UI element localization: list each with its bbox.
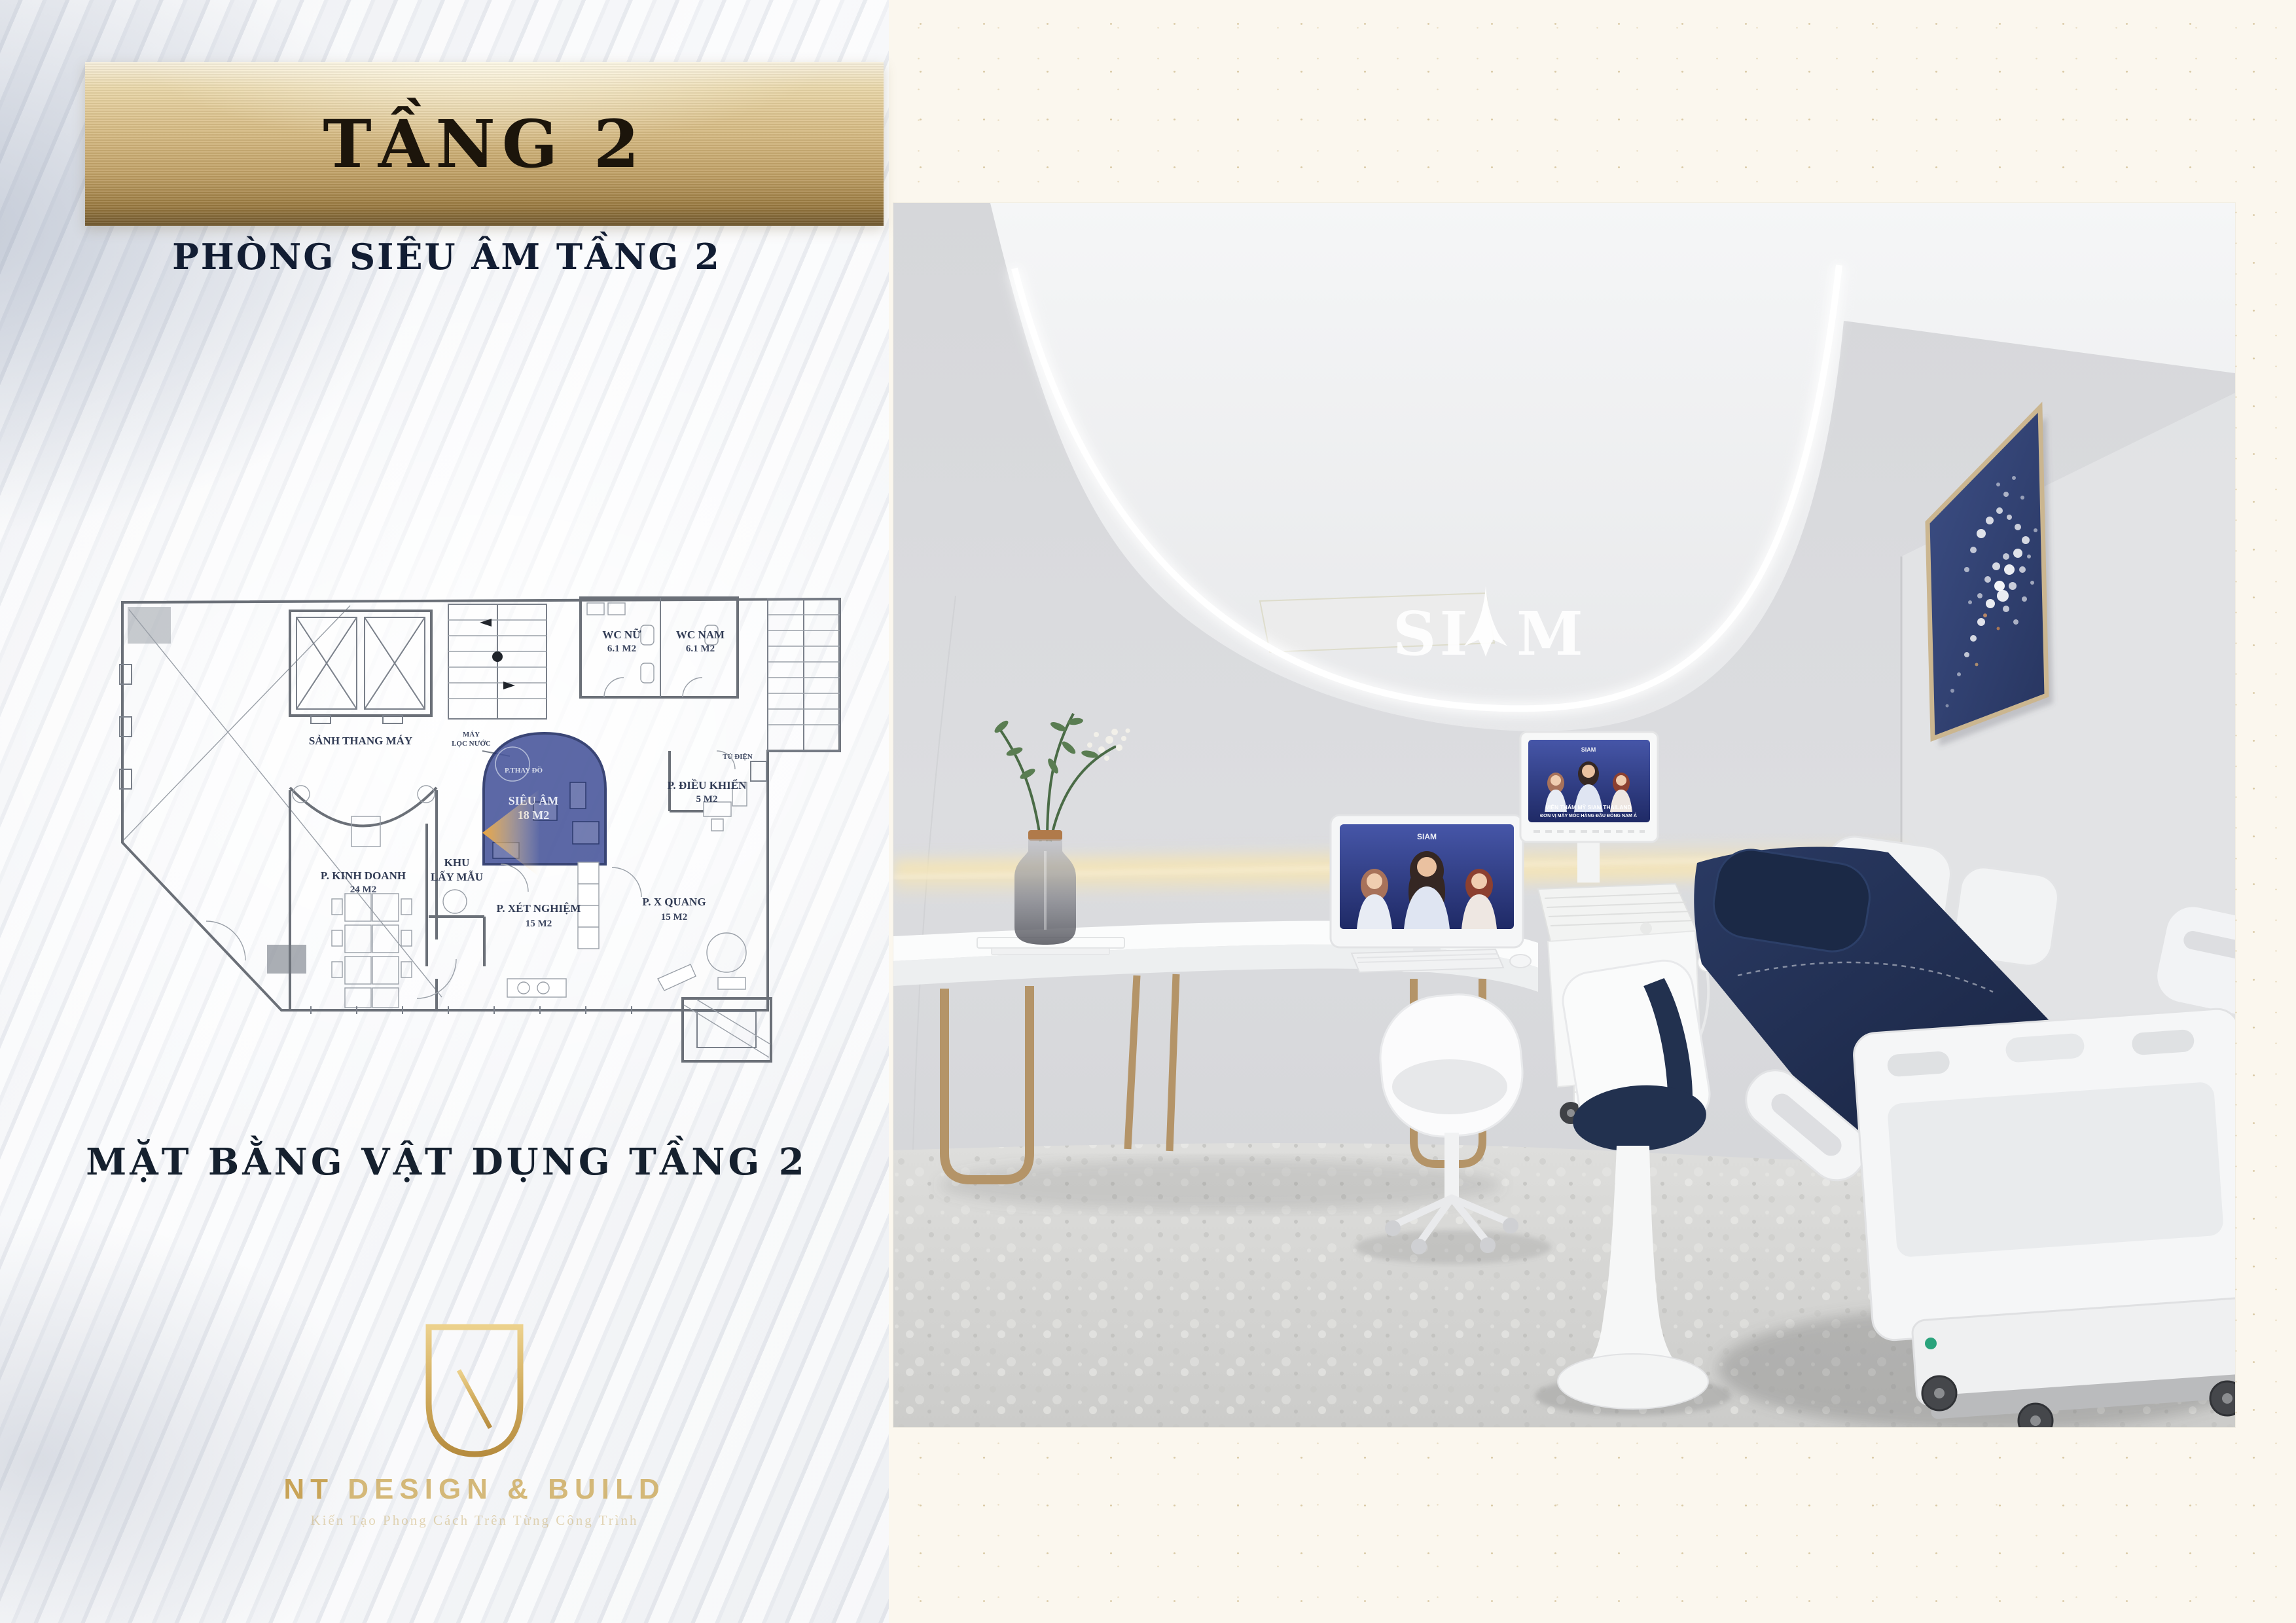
nt-monogram-shield-icon <box>418 1319 531 1458</box>
label-dieu-khien: P. ĐIỀU KHIỂN <box>668 779 747 792</box>
svg-text:6.1 M2: 6.1 M2 <box>686 644 715 654</box>
kinh-doanh-room <box>290 786 456 1009</box>
label-wc-nu: WC NỮ <box>602 628 641 641</box>
bed-power-indicator <box>1925 1338 1937 1349</box>
label-khu-lay-mau: KHU <box>444 856 470 869</box>
floor-banner-title: TẦNG 2 <box>323 105 645 183</box>
floor-banner: TẦNG 2 <box>85 62 884 226</box>
svg-text:LẤY MẪU: LẤY MẪU <box>431 871 483 883</box>
label-xet-nghiem: P. XÉT NGHIỆM <box>497 902 581 915</box>
bottom-shaft <box>683 998 771 1061</box>
presentation-page: TẦNG 2 PHÒNG SIÊU ÂM TẦNG 2 <box>0 0 2296 1623</box>
siam-logo-text-left: SI <box>1393 598 1471 669</box>
label-wc-nam: WC NAM <box>676 629 725 641</box>
label-tu-dien: TỦ ĐIỆN <box>723 752 753 761</box>
imac-screen-brand: SIAM <box>1417 832 1437 841</box>
stairs-main <box>448 604 547 719</box>
ultrasound-room-render: SI M <box>893 203 2235 1427</box>
svg-text:5 M2: 5 M2 <box>696 794 718 805</box>
label-lobby: SẢNH THANG MÁY <box>309 735 412 747</box>
x-quang-room <box>612 867 746 991</box>
elevator-shafts <box>290 611 431 723</box>
svg-text:LỌC NƯỚC: LỌC NƯỚC <box>452 740 491 748</box>
svg-text:15 M2: 15 M2 <box>526 919 552 929</box>
svg-text:15 M2: 15 M2 <box>661 912 687 922</box>
label-x-quang: P. X QUANG <box>642 896 706 908</box>
room-scene: SI M <box>893 203 2235 1427</box>
floor-plan-drawing: SẢNH THANG MÁY MÁY LỌC NƯỚC <box>115 586 841 1064</box>
plan-caption: MẶT BẰNG VẬT DỤNG TẦNG 2 <box>0 1140 893 1184</box>
company-logo: NT DESIGN & BUILD Kiến Tạo Phong Cách Tr… <box>245 1319 704 1529</box>
siam-logo-text-right: M <box>1516 598 1587 669</box>
label-thay-do: P.THAY ĐỒ <box>505 766 543 775</box>
mouse <box>1510 955 1531 968</box>
room-subtitle: PHÒNG SIÊU ÂM TẦNG 2 <box>0 236 893 278</box>
company-wordmark: NT DESIGN & BUILD <box>245 1473 704 1506</box>
label-water-filter: MÁY <box>463 731 480 739</box>
svg-text:6.1 M2: 6.1 M2 <box>607 644 636 654</box>
stairs-right <box>768 599 840 751</box>
sieu-am-room-highlight: P.THAY ĐỒ SIÊU ÂM 18 M2 <box>482 733 605 877</box>
floor-plan: SẢNH THANG MÁY MÁY LỌC NƯỚC <box>115 586 841 1064</box>
label-kinh-doanh: P. KINH DOANH <box>321 869 406 882</box>
ultrasound-screen-brand: SIAM <box>1581 746 1596 753</box>
company-tagline: Kiến Tạo Phong Cách Trên Từng Công Trình <box>245 1512 704 1529</box>
xet-nghiem-room <box>501 862 599 997</box>
ultrasound-caption-1: VIỆN THẨM MỸ SIAM THAILAND <box>1545 803 1631 811</box>
footboard <box>1852 1008 2235 1341</box>
svg-text:24 M2: 24 M2 <box>350 884 376 895</box>
